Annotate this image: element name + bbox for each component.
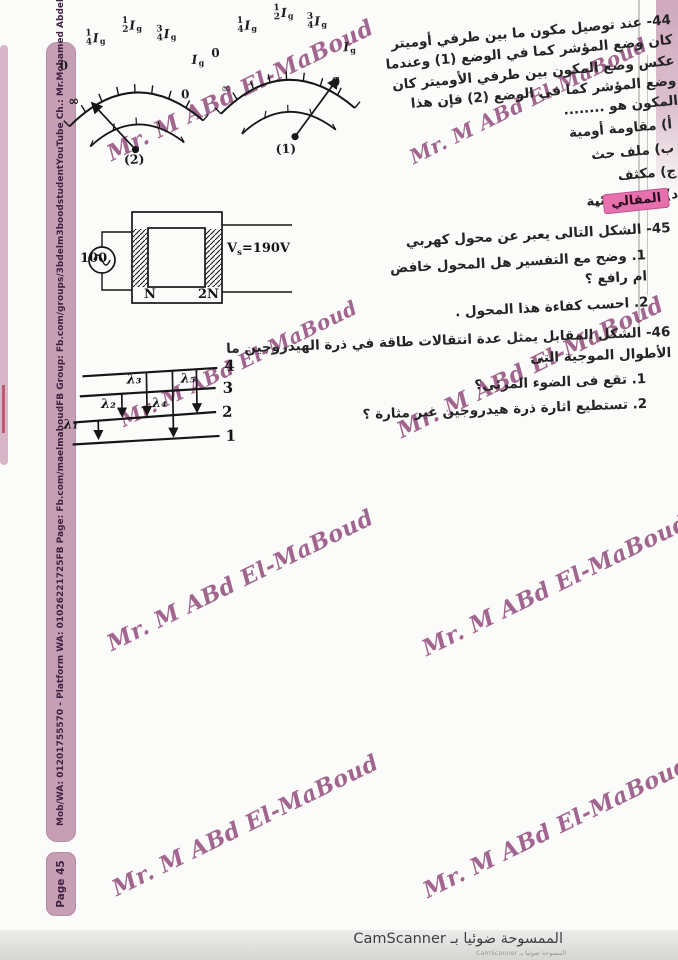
meter-2-ohm-infinity: ∞: [68, 94, 79, 109]
lambda-4-label: λ₄: [152, 396, 167, 411]
current-symbol: I: [93, 30, 100, 45]
current-symbol: I: [343, 39, 350, 54]
current-subscript: g: [100, 36, 106, 46]
meter-1-tag: (1): [275, 141, 296, 157]
source-voltage-label: 100: [80, 251, 107, 266]
current-symbol: I: [244, 17, 251, 32]
meter-2-scale-full: Ig: [191, 50, 204, 68]
meter-1-scale-full: Ig: [343, 38, 356, 56]
current-symbol: I: [314, 13, 321, 28]
meter-1-scale-zero: 0: [211, 46, 220, 60]
page-number-label: Page 45: [46, 852, 76, 916]
meter-2-scale-threequarter: 34 Ig: [156, 25, 176, 43]
meter-1-scale-quarter: 14 Ig: [237, 16, 257, 34]
watermark: Mr. M ABd El-MaBoud: [418, 546, 618, 661]
camscanner-footer: الممسوحة ضوئيا بـ CamScanner: [353, 931, 563, 947]
sidebar-mobile-info: Mob/WA: 01201755570 - Platform WA: 01026…: [56, 559, 66, 826]
question-45: 45- الشكل التالى يعبر عن محول كهربي 1. و…: [378, 218, 675, 328]
current-subscript: g: [321, 19, 327, 29]
current-subscript: g: [136, 23, 142, 33]
meter-2-scale-half: 12 Ig: [122, 16, 142, 34]
current-symbol: I: [281, 5, 288, 20]
scanned-exam-page: Mob/WA: 01201755570 - Platform WA: 01026…: [0, 0, 678, 960]
secondary-turns-label: 2N: [198, 287, 219, 302]
badge-dash: -: [595, 198, 600, 213]
watermark: Mr. M ABd El-MaBoud: [419, 788, 619, 903]
lambda-5-label: λ₅: [180, 371, 195, 386]
meter-1-ohm-infinity: ∞: [221, 81, 232, 96]
scan-left-red-line: [2, 385, 5, 433]
fraction-denominator: 4: [156, 34, 163, 43]
current-subscript: g: [251, 23, 257, 33]
meter-1-drawing: [208, 0, 367, 162]
ohmmeter-figure: 0 14 Ig 12 Ig 34 Ig Ig ∞ 0 (2) 0 14 Ig 1…: [51, 0, 380, 187]
lambda-1-label: λ₁: [63, 417, 78, 432]
energy-levels-figure: 4 3 2 1 λ₁ λ₂ λ₃ λ₄ λ₅: [54, 346, 261, 468]
secondary-voltage-label: Vs=190V: [227, 241, 290, 258]
current-symbol: I: [163, 26, 170, 41]
voltage-symbol: V: [227, 241, 237, 256]
current-subscript: g: [171, 32, 177, 42]
fraction-denominator: 4: [307, 21, 314, 30]
question-46: 46- الشكل المقابل يمثل عدة انتقالات طاقة…: [215, 322, 673, 431]
camscanner-footer-small: المسوحة ضوئيا بـ CamScanner: [476, 949, 566, 957]
meter-2-ohm-zero: 0: [181, 87, 190, 101]
lambda-3-label: λ₃: [126, 372, 141, 387]
current-subscript: g: [350, 45, 356, 55]
level-2-label: 2: [222, 403, 233, 421]
current-subscript: g: [198, 57, 204, 67]
meter-1-ohm-zero: 0: [331, 75, 340, 89]
watermark: Mr. M ABd El-MaBoud: [103, 541, 303, 656]
level-1-label: 1: [225, 427, 236, 445]
meter-2-scale-zero: 0: [59, 58, 68, 72]
meter-2-tag: (2): [124, 151, 145, 167]
meter-1-scale-threequarter: 34 Ig: [307, 12, 327, 30]
fraction-denominator: 2: [122, 25, 129, 34]
fraction-denominator: 2: [274, 13, 281, 22]
voltage-value: =190V: [242, 241, 290, 256]
current-symbol: I: [129, 18, 136, 33]
meter-2-scale-quarter: 14 Ig: [85, 29, 105, 47]
lambda-2-label: λ₂: [101, 397, 116, 412]
meter-1-scale-half: 12 Ig: [273, 4, 293, 22]
watermark: Mr. M ABd El-MaBoud: [108, 786, 308, 901]
primary-turns-label: N: [144, 287, 156, 302]
current-symbol: I: [191, 52, 198, 67]
current-subscript: g: [288, 11, 294, 21]
scan-bottom-band: [0, 930, 678, 960]
level-4-label: 4: [224, 357, 235, 375]
transformer-figure: 100 N 2N Vs=190V: [80, 185, 380, 320]
level-3-label: 3: [223, 379, 234, 397]
fraction-denominator: 4: [237, 25, 244, 34]
fraction-denominator: 4: [86, 38, 93, 47]
